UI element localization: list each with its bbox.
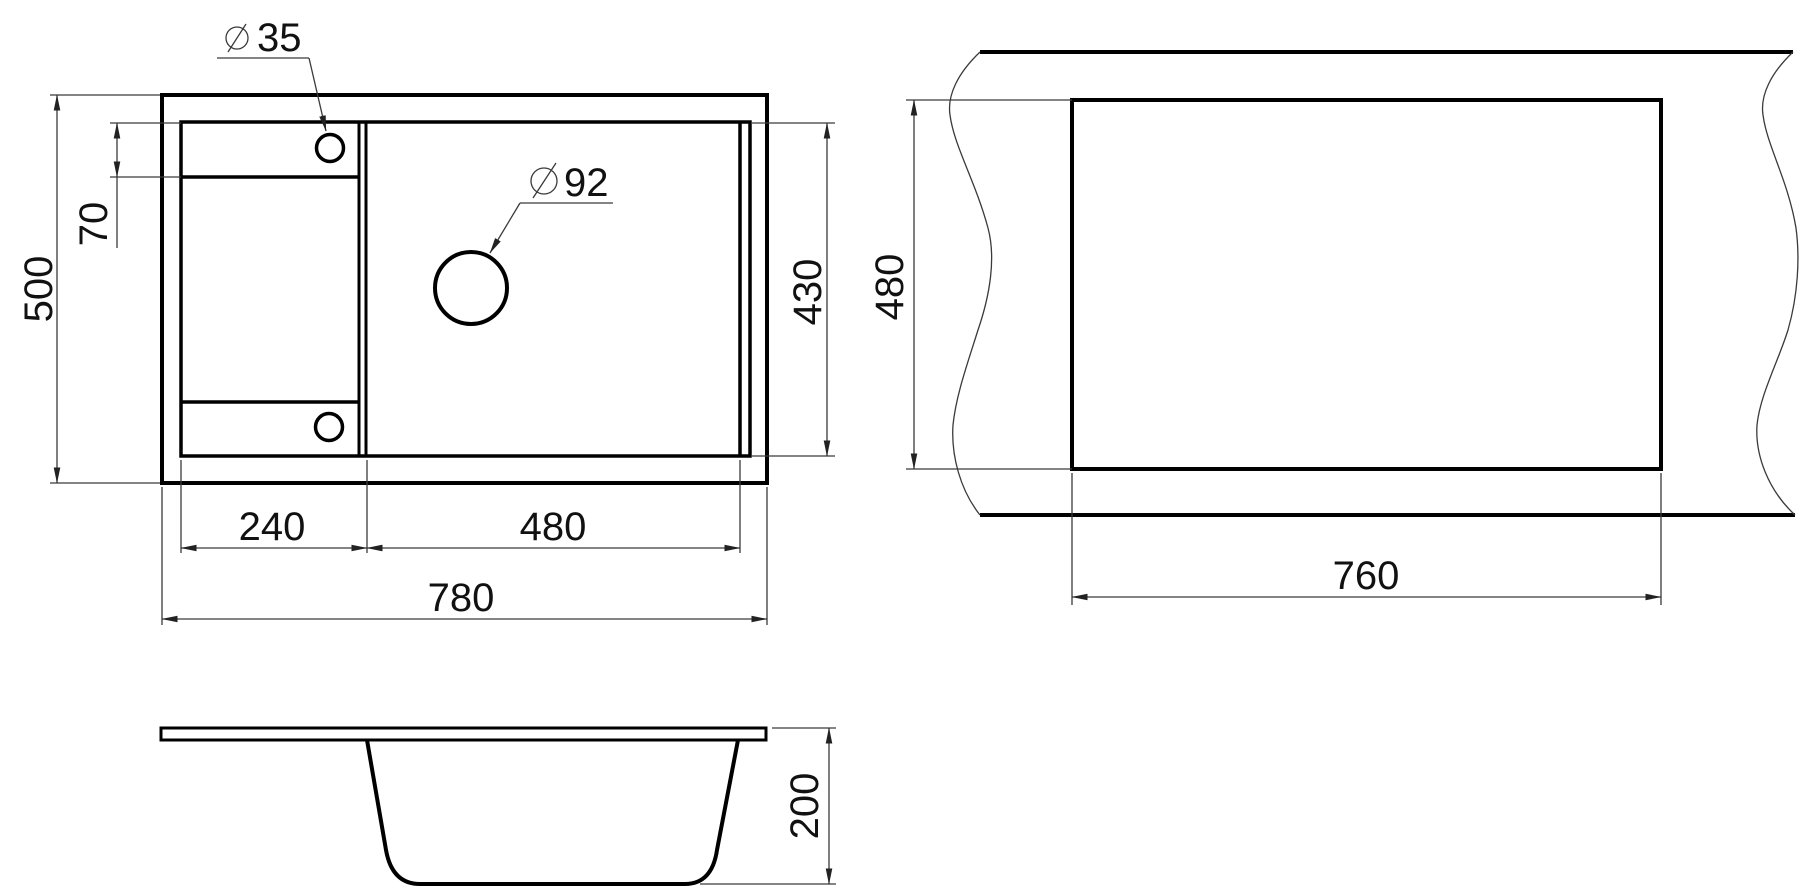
cutout-outline bbox=[1072, 100, 1661, 469]
dim-tap-hole-offset: 70 bbox=[72, 123, 181, 248]
dimension-label: 70 bbox=[72, 202, 116, 247]
dimension-label: 430 bbox=[786, 259, 830, 326]
callout-label: 92 bbox=[564, 161, 609, 205]
dimension-label: 200 bbox=[783, 773, 827, 840]
plan-view: 500 70 430 240 480 bbox=[17, 16, 835, 625]
break-line-right bbox=[1757, 52, 1798, 515]
dimension-label: 240 bbox=[239, 505, 306, 549]
profile-bowl bbox=[367, 740, 738, 884]
dim-cutout-depth: 480 bbox=[868, 100, 1072, 469]
dimension-label: 480 bbox=[520, 505, 587, 549]
break-line-left bbox=[950, 52, 992, 515]
callout-tap-hole-diameter: 35 bbox=[217, 16, 326, 131]
plan-outer-outline bbox=[162, 95, 767, 483]
plan-rim-outline bbox=[181, 122, 750, 456]
technical-drawing: 500 70 430 240 480 bbox=[0, 0, 1800, 889]
dimension-label: 500 bbox=[17, 256, 61, 323]
dim-bowl-depth: 200 bbox=[700, 728, 836, 884]
plan-tap-hole-top bbox=[317, 135, 344, 162]
profile-rim bbox=[161, 728, 766, 740]
profile-view: 200 bbox=[161, 728, 836, 884]
dim-bowl-front-back: 430 bbox=[752, 123, 835, 456]
dimension-label: 780 bbox=[428, 576, 495, 620]
dim-bowl-width: 480 bbox=[367, 460, 740, 553]
callout-drain-hole-diameter: 92 bbox=[490, 161, 613, 253]
dim-drainer-width: 240 bbox=[181, 460, 367, 553]
plan-drain-hole bbox=[435, 252, 507, 324]
callout-label: 35 bbox=[257, 16, 302, 60]
leader-line bbox=[490, 203, 520, 253]
dim-cutout-width: 760 bbox=[1072, 473, 1661, 605]
dim-overall-depth: 500 bbox=[17, 95, 160, 483]
dimension-label: 760 bbox=[1333, 554, 1400, 598]
drawing-sheet: 500 70 430 240 480 bbox=[0, 0, 1800, 889]
diameter-symbol-icon bbox=[228, 24, 246, 52]
plan-tap-hole-bottom bbox=[316, 414, 343, 441]
dimension-label: 480 bbox=[868, 254, 912, 321]
cutout-view: 480 760 bbox=[868, 52, 1798, 605]
